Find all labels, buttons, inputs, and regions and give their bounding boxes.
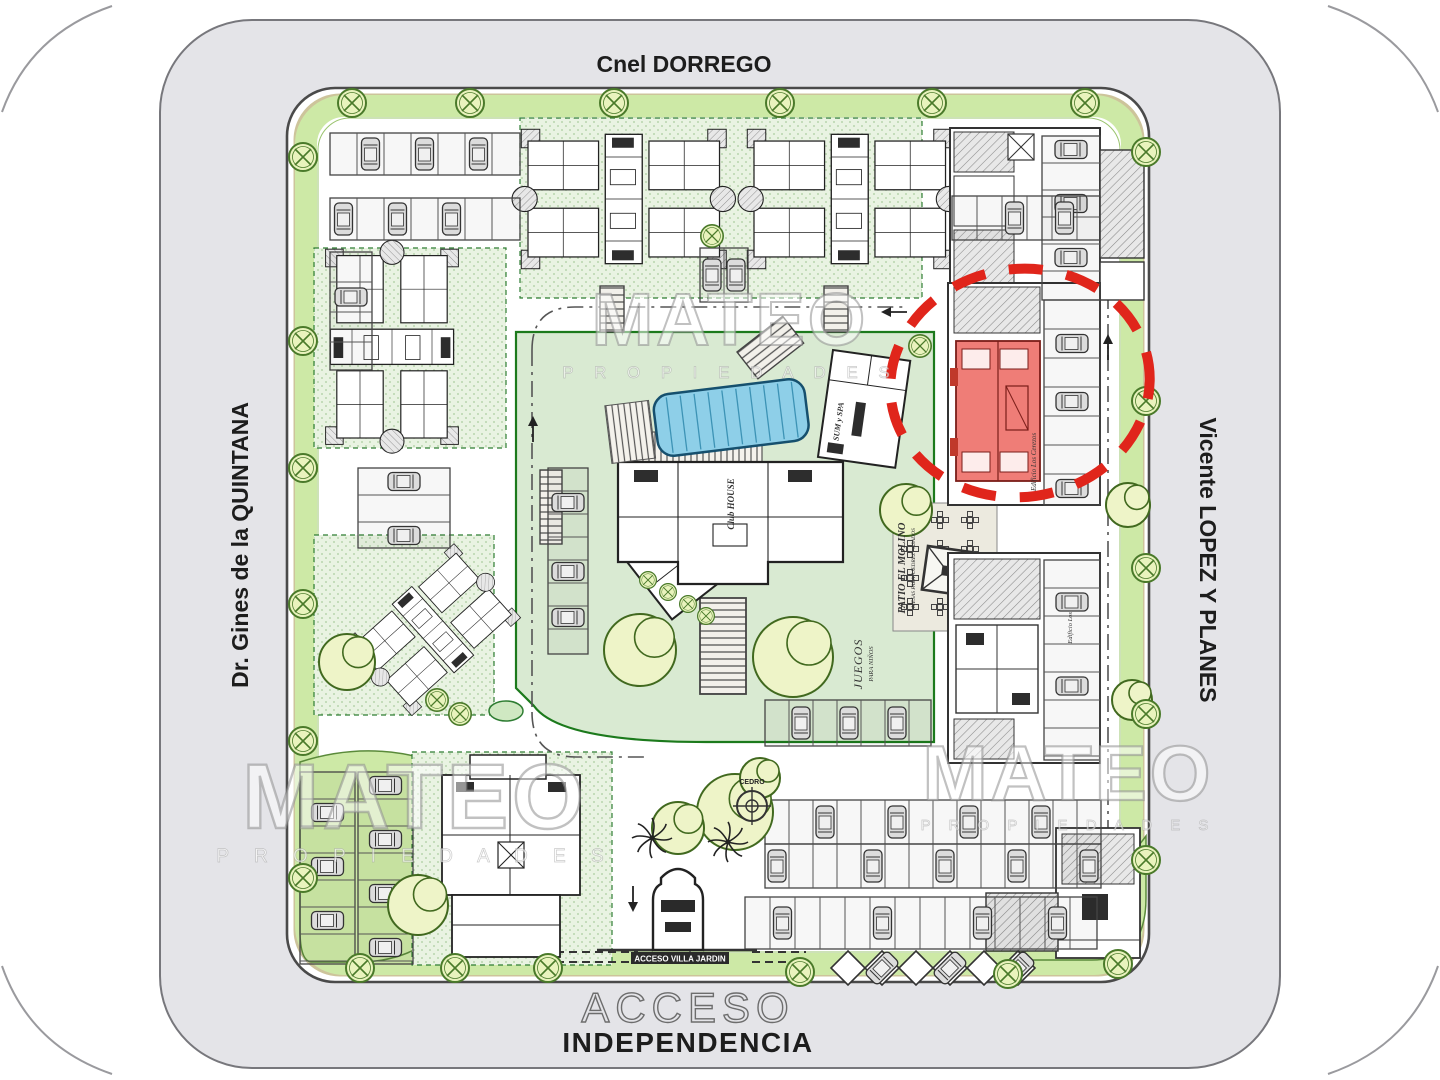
playground-sublabel: PARA NIÑOS	[867, 646, 875, 683]
tree-icon	[786, 958, 814, 986]
car-icon	[1056, 593, 1088, 611]
car-icon	[389, 203, 407, 235]
car-icon	[1056, 393, 1088, 411]
car-icon	[974, 907, 992, 939]
car-icon	[416, 138, 434, 170]
car-icon	[312, 912, 344, 930]
corner-curb	[1328, 6, 1438, 112]
tree-icon	[1071, 89, 1099, 117]
tree-icon	[289, 590, 317, 618]
car-icon	[864, 850, 882, 882]
car-icon	[552, 494, 584, 512]
highlighted-building-label: Edificio Los Cerezos	[1030, 433, 1038, 492]
car-icon	[936, 850, 954, 882]
car-icon	[840, 707, 858, 739]
tree-icon	[346, 954, 374, 982]
car-icon	[552, 609, 584, 627]
car-icon	[888, 707, 906, 739]
tree-icon	[640, 572, 657, 589]
car-icon	[1008, 850, 1026, 882]
corner-curb	[2, 6, 112, 112]
car-icon	[370, 939, 402, 957]
car-icon	[443, 203, 461, 235]
car-icon	[388, 527, 420, 545]
traffic-island	[489, 701, 523, 721]
palm-icon	[650, 836, 655, 841]
tree-canopy	[674, 805, 703, 834]
clubhouse-label: Club HOUSE	[726, 478, 736, 529]
car-icon	[874, 907, 892, 939]
car-icon	[888, 806, 906, 838]
tree-icon	[289, 143, 317, 171]
parking-row	[952, 196, 1100, 240]
tree-icon	[680, 596, 697, 613]
watermark-brand: MATEO	[242, 746, 587, 848]
tree-icon	[701, 225, 723, 247]
tree-icon	[289, 327, 317, 355]
site-plan-map: Cnel DORREGO Dr. Gines de la QUINTANA Vi…	[0, 0, 1440, 1080]
tree-icon	[289, 454, 317, 482]
car-icon	[1056, 335, 1088, 353]
tree-icon	[449, 703, 471, 725]
watermark-bottom-left: MATEO P R O P I E D A D E S	[216, 746, 613, 867]
car-icon	[1049, 907, 1067, 939]
car-icon	[1056, 677, 1088, 695]
tree-icon	[441, 954, 469, 982]
patio-sublabel: MESAS PARA AJEDREZ - ASADOS	[911, 528, 917, 609]
palm-icon	[726, 840, 731, 845]
car-icon	[1055, 141, 1087, 159]
tree-canopy	[1125, 485, 1149, 509]
tree-icon	[660, 584, 677, 601]
watermark-subtitle: P R O P I E D A D E S	[921, 817, 1216, 834]
access-label-line2: INDEPENDENCIA	[562, 1027, 813, 1058]
tree-icon	[1132, 554, 1160, 582]
street-label-left: Dr. Gines de la QUINTANA	[227, 402, 253, 688]
tree-icon	[426, 689, 448, 711]
cedro-label: CEDRO	[739, 779, 765, 786]
car-icon	[362, 138, 380, 170]
watermark-subtitle: P R O P I E D A D E S	[216, 846, 613, 867]
car-icon	[335, 203, 353, 235]
gate-band-label: ACCESO VILLA JARDIN	[634, 955, 725, 964]
tree-icon	[909, 335, 931, 357]
car-icon	[470, 138, 488, 170]
tree-icon	[1132, 138, 1160, 166]
car-icon	[1006, 202, 1024, 234]
tree-canopy	[787, 621, 831, 665]
corner-curb	[1328, 966, 1438, 1074]
tree-icon	[289, 864, 317, 892]
watermark-brand: MATEO	[923, 729, 1214, 817]
parking-row	[330, 252, 372, 370]
tree-icon	[1132, 700, 1160, 728]
tree-canopy	[635, 618, 675, 658]
patio-label: PATIO EL MOLINO	[897, 522, 908, 613]
car-icon	[552, 563, 584, 581]
playground-label: JUEGOS	[851, 639, 865, 690]
car-icon	[816, 806, 834, 838]
tree-canopy	[343, 637, 374, 668]
parking-row	[745, 897, 1097, 949]
tree-canopy	[414, 878, 447, 911]
tree-canopy	[902, 487, 931, 516]
access-label-line1: ACCESO	[581, 984, 794, 1031]
car-icon	[774, 907, 792, 939]
street-label-top: Cnel DORREGO	[596, 51, 771, 77]
tree-icon	[766, 89, 794, 117]
tree-icon	[1104, 950, 1132, 978]
car-icon	[792, 707, 810, 739]
tree-icon	[918, 89, 946, 117]
tree-icon	[600, 89, 628, 117]
corner-curb	[2, 966, 112, 1074]
watermark-subtitle: P R O P I E D A D E S	[562, 363, 898, 382]
car-icon	[768, 850, 786, 882]
car-icon	[1056, 202, 1074, 234]
tree-icon	[534, 954, 562, 982]
watermark-brand: MATEO	[592, 278, 869, 361]
street-label-right: Vicente LOPEZ Y PLANES	[1195, 417, 1221, 702]
car-icon	[335, 288, 367, 306]
tree-icon	[698, 608, 715, 625]
tree-icon	[338, 89, 366, 117]
watermark-bottom-right: MATEO P R O P I E D A D E S	[921, 729, 1216, 834]
car-icon	[388, 473, 420, 491]
car-icon	[1080, 850, 1098, 882]
tree-icon	[1132, 846, 1160, 874]
tree-icon	[994, 960, 1022, 988]
car-icon	[1055, 249, 1087, 267]
tree-icon	[456, 89, 484, 117]
watermark-center: MATEO P R O P I E D A D E S	[562, 278, 898, 382]
